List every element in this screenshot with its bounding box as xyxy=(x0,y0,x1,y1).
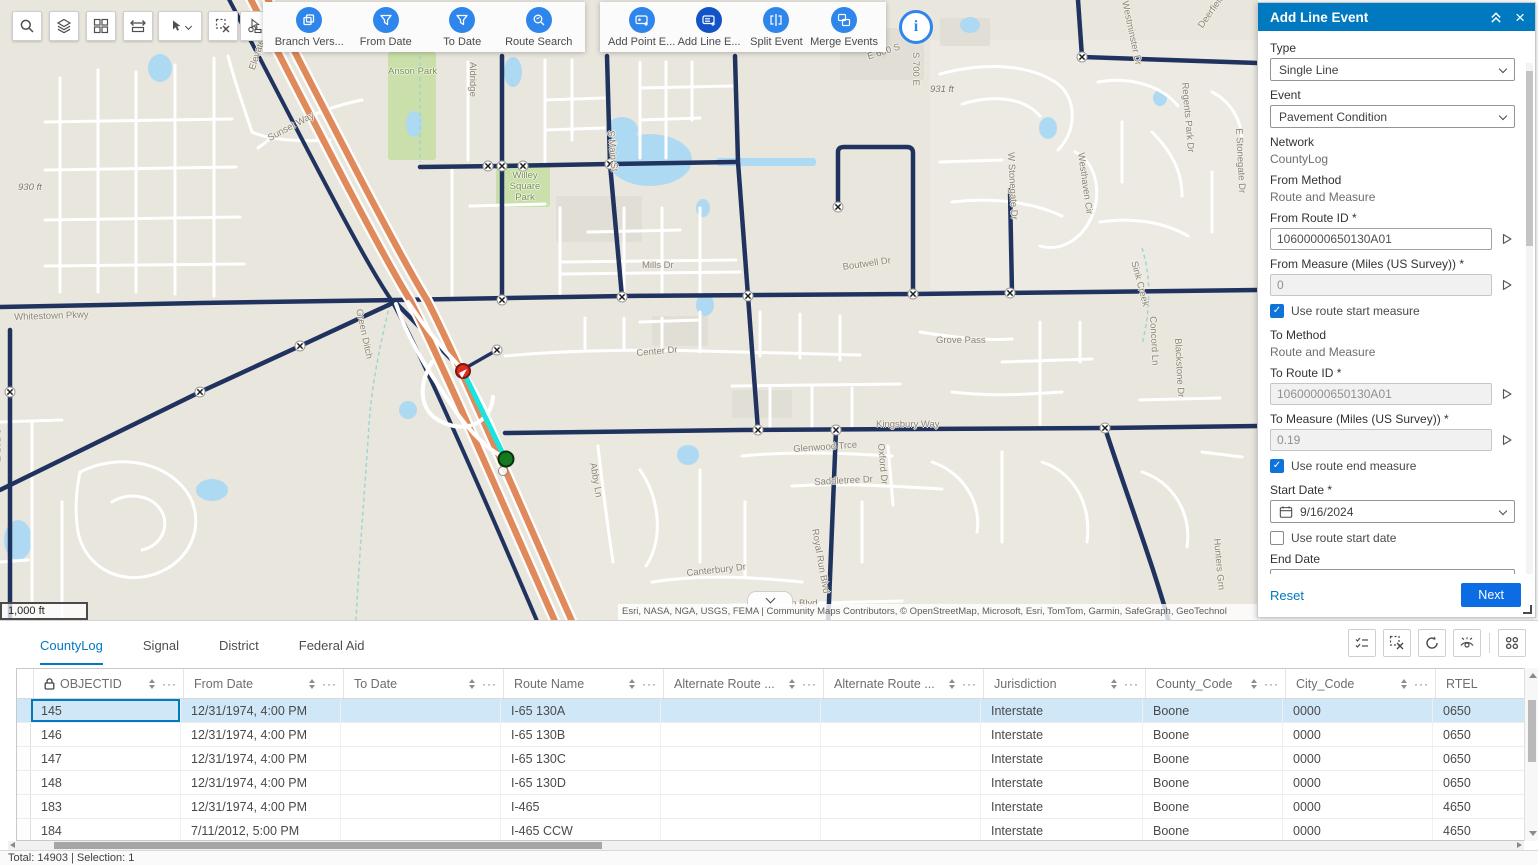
clear-selection-icon xyxy=(1389,635,1405,651)
checkbox-unchecked-icon xyxy=(1270,531,1284,545)
from-measure-input[interactable] xyxy=(1270,274,1492,296)
table-cell[interactable] xyxy=(661,723,821,746)
sort-icon[interactable] xyxy=(143,679,155,689)
merge-events-button[interactable]: Merge Events xyxy=(810,7,878,48)
to-measure-marker[interactable] xyxy=(499,452,514,467)
add-line-event-panel: Add Line Event × Type Single Line Event … xyxy=(1257,2,1536,618)
to-route-id-label: To Route ID * xyxy=(1270,366,1515,380)
from-method-value: Route and Measure xyxy=(1270,190,1515,204)
column-header[interactable]: Route Name··· xyxy=(504,669,664,698)
table-cell[interactable] xyxy=(661,747,821,770)
basemap-grid-icon xyxy=(93,18,109,34)
sort-icon[interactable] xyxy=(943,679,955,689)
next-button[interactable]: Next xyxy=(1461,583,1521,607)
sort-icon[interactable] xyxy=(1245,679,1257,689)
table-cell[interactable]: 0650 xyxy=(1433,771,1524,794)
column-menu-icon[interactable]: ··· xyxy=(322,677,337,691)
branch-versions-icon xyxy=(296,7,322,33)
table-cell[interactable]: 4650 xyxy=(1433,819,1524,841)
panel-resize-handle[interactable] xyxy=(1523,605,1532,614)
table-cell[interactable]: 12/31/1974, 4:00 PM xyxy=(181,747,341,770)
table-row[interactable]: 14812/31/1974, 4:00 PMI-65 130DInterstat… xyxy=(17,771,1524,795)
table-toolbar xyxy=(1348,629,1526,657)
select-tool-button[interactable] xyxy=(158,11,202,41)
split-event-button[interactable]: Split Event xyxy=(743,7,810,48)
table-cell[interactable]: Interstate xyxy=(981,747,1143,770)
end-date-placeholder: MM/DD/YYYY xyxy=(1300,574,1376,575)
table-cell[interactable]: Boone xyxy=(1143,771,1283,794)
tool-label: Split Event xyxy=(750,36,803,48)
chevron-down-icon xyxy=(1499,64,1507,72)
close-icon: × xyxy=(1515,9,1525,26)
info-button[interactable]: i xyxy=(899,10,933,44)
table-cell[interactable]: 147 xyxy=(31,747,181,770)
network-label: Network xyxy=(1270,135,1515,149)
table-cell[interactable]: Interstate xyxy=(981,795,1143,818)
sort-icon[interactable] xyxy=(463,679,475,689)
table-cell[interactable] xyxy=(661,795,821,818)
table-body: 14512/31/1974, 4:00 PMI-65 130AInterstat… xyxy=(17,699,1524,841)
clear-table-selection-button[interactable] xyxy=(1383,629,1411,657)
tool-label: Add Line E... xyxy=(678,36,741,48)
table-cell[interactable]: 148 xyxy=(31,771,181,794)
column-header[interactable]: City_Code··· xyxy=(1286,669,1436,698)
table-row[interactable]: 14512/31/1974, 4:00 PMI-65 130AInterstat… xyxy=(17,699,1524,723)
end-date-input[interactable]: MM/DD/YYYY xyxy=(1270,569,1515,574)
tab-signal[interactable]: Signal xyxy=(143,638,179,665)
table-cell[interactable]: 145 xyxy=(31,699,181,722)
table-cell[interactable] xyxy=(341,795,501,818)
filter-icon xyxy=(373,7,399,33)
add-line-event-icon xyxy=(696,7,722,33)
tab-federal-aid[interactable]: Federal Aid xyxy=(299,638,365,665)
column-label: Alternate Route ... xyxy=(834,677,935,691)
tool-label: Route Search xyxy=(505,36,572,48)
table-cell[interactable]: Interstate xyxy=(981,723,1143,746)
table-cell[interactable] xyxy=(661,771,821,794)
table-cell[interactable]: 12/31/1974, 4:00 PM xyxy=(181,723,341,746)
tab-countylog[interactable]: CountyLog xyxy=(40,638,103,665)
clear-selection-button[interactable] xyxy=(208,11,238,41)
table-cell[interactable]: I-65 130B xyxy=(501,723,661,746)
column-menu-icon[interactable]: ··· xyxy=(1264,677,1279,691)
tool-label: Branch Vers... xyxy=(275,36,344,48)
measure-picker-icon[interactable] xyxy=(1499,432,1515,448)
row-strip xyxy=(17,819,31,841)
table-cell[interactable] xyxy=(341,747,501,770)
table-row[interactable]: 1847/11/2012, 5:00 PMI-465 CCWInterstate… xyxy=(17,819,1524,841)
checkbox-label: Use route start measure xyxy=(1291,304,1420,318)
column-label: OBJECTID xyxy=(60,677,122,691)
split-event-icon xyxy=(763,7,789,33)
field-options-grid-icon xyxy=(1504,635,1520,651)
to-method-value: Route and Measure xyxy=(1270,345,1515,359)
calendar-icon xyxy=(1279,574,1293,575)
route-picker-icon[interactable] xyxy=(1499,231,1515,247)
column-label: Jurisdiction xyxy=(994,677,1057,691)
event-label: Event xyxy=(1270,88,1515,102)
row-strip xyxy=(17,771,31,794)
column-header[interactable]: To Date··· xyxy=(344,669,504,698)
column-label: RTEL xyxy=(1446,677,1478,691)
table-cell[interactable] xyxy=(341,699,501,722)
column-label: Route Name xyxy=(514,677,584,691)
sort-icon[interactable] xyxy=(623,679,635,689)
panel-close-button[interactable]: × xyxy=(1515,9,1525,26)
table-cell[interactable]: 7/11/2012, 5:00 PM xyxy=(181,819,341,841)
table-cell[interactable]: Boone xyxy=(1143,699,1283,722)
to-method-label: To Method xyxy=(1270,328,1515,342)
column-header[interactable]: County_Code··· xyxy=(1146,669,1286,698)
table-cell[interactable]: 12/31/1974, 4:00 PM xyxy=(181,795,341,818)
chevron-down-icon xyxy=(765,594,775,604)
column-label: To Date xyxy=(354,677,397,691)
measure-picker-icon[interactable] xyxy=(1499,277,1515,293)
column-label: County_Code xyxy=(1156,677,1232,691)
attribute-table-section: CountyLog Signal District Federal Aid xyxy=(0,620,1538,865)
end-date-label: End Date xyxy=(1270,552,1515,566)
table-cell[interactable]: Interstate xyxy=(981,771,1143,794)
tool-label: To Date xyxy=(443,36,481,48)
layers-icon xyxy=(56,18,72,34)
use-route-start-date-checkbox[interactable]: Use route start date xyxy=(1270,531,1515,545)
reset-link[interactable]: Reset xyxy=(1270,588,1304,603)
column-menu-icon[interactable]: ··· xyxy=(162,677,177,691)
table-cell[interactable]: 0650 xyxy=(1433,747,1524,770)
add-line-event-button[interactable]: Add Line E... xyxy=(675,7,742,48)
panel-body: Type Single Line Event Pavement Conditio… xyxy=(1258,31,1535,574)
table-cell[interactable] xyxy=(821,747,981,770)
table-cell[interactable]: I-65 130C xyxy=(501,747,661,770)
table-cell[interactable] xyxy=(821,699,981,722)
column-header[interactable]: RTEL xyxy=(1436,669,1524,698)
clear-selection-icon xyxy=(215,18,231,34)
table-cell[interactable]: Boone xyxy=(1143,723,1283,746)
from-measure-label: From Measure (Miles (US Survey)) * xyxy=(1270,257,1515,271)
column-label: Alternate Route ... xyxy=(674,677,775,691)
refresh-icon xyxy=(1424,635,1440,651)
column-label: From Date xyxy=(194,677,253,691)
table-cell[interactable]: 0000 xyxy=(1283,723,1433,746)
table-cell[interactable]: 0650 xyxy=(1433,699,1524,722)
tab-district[interactable]: District xyxy=(219,638,259,665)
chevron-down-icon xyxy=(184,22,191,29)
from-date-filter-button[interactable]: From Date xyxy=(350,7,422,48)
table-cell[interactable] xyxy=(821,819,981,841)
table-tabs-bar: CountyLog Signal District Federal Aid xyxy=(0,621,1538,665)
calendar-icon xyxy=(1279,505,1293,519)
checkbox-label: Use route start date xyxy=(1291,531,1396,545)
sort-icon[interactable] xyxy=(303,679,315,689)
column-menu-icon[interactable]: ··· xyxy=(1414,677,1429,691)
table-cell[interactable]: I-65 130D xyxy=(501,771,661,794)
map-search-button[interactable] xyxy=(12,11,42,41)
event-select[interactable]: Pavement Condition xyxy=(1270,105,1515,128)
table-cell[interactable] xyxy=(341,771,501,794)
column-menu-icon[interactable]: ··· xyxy=(1124,677,1139,691)
checkbox-checked-icon: ✓ xyxy=(1270,304,1284,318)
type-select-value: Single Line xyxy=(1279,63,1338,77)
chevron-down-icon xyxy=(1499,111,1507,119)
table-row[interactable]: 14712/31/1974, 4:00 PMI-65 130CInterstat… xyxy=(17,747,1524,771)
sort-icon[interactable] xyxy=(783,679,795,689)
show-selected-icon xyxy=(1354,635,1370,651)
from-method-label: From Method xyxy=(1270,173,1515,187)
table-cell[interactable] xyxy=(341,723,501,746)
show-selected-records-button[interactable] xyxy=(1348,629,1376,657)
panel-header: Add Line Event × xyxy=(1258,3,1535,31)
table-horizontal-scrollbar[interactable] xyxy=(8,841,1524,850)
from-measure-marker[interactable] xyxy=(456,364,470,378)
column-header[interactable]: Alternate Route ...··· xyxy=(664,669,824,698)
table-cell[interactable] xyxy=(661,819,821,841)
select-cursor-icon xyxy=(170,19,184,33)
table-status-bar: Total: 14903 | Selection: 1 xyxy=(0,850,1538,865)
start-date-value: 9/16/2024 xyxy=(1300,505,1353,519)
search-icon xyxy=(19,18,35,34)
table-cell[interactable]: 0000 xyxy=(1283,795,1433,818)
panel-scrollbar[interactable] xyxy=(1526,63,1533,574)
selection-tools-card: Branch Vers... From Date To Date Route S… xyxy=(263,2,585,52)
column-menu-icon[interactable]: ··· xyxy=(642,677,657,691)
table-cell[interactable]: Boone xyxy=(1143,747,1283,770)
column-menu-icon[interactable]: ··· xyxy=(962,677,977,691)
double-chevron-up-icon xyxy=(1489,10,1503,24)
table-cell[interactable]: 0000 xyxy=(1283,747,1433,770)
table-cell[interactable]: Boone xyxy=(1143,819,1283,841)
table-cell[interactable]: 0000 xyxy=(1283,699,1433,722)
table-cell[interactable]: 0000 xyxy=(1283,819,1433,841)
park-area xyxy=(388,52,436,160)
table-cell[interactable]: 146 xyxy=(31,723,181,746)
sort-icon[interactable] xyxy=(1105,679,1117,689)
table-cell[interactable]: 12/31/1974, 4:00 PM xyxy=(181,771,341,794)
use-route-end-measure-checkbox[interactable]: ✓ Use route end measure xyxy=(1270,459,1515,473)
select-route-icon xyxy=(247,18,263,34)
chevron-down-icon xyxy=(1499,506,1507,514)
sort-icon[interactable] xyxy=(1395,679,1407,689)
table-cell[interactable]: Boone xyxy=(1143,795,1283,818)
add-point-event-button[interactable]: Add Point E... xyxy=(608,7,675,48)
network-value: CountyLog xyxy=(1270,152,1515,166)
row-strip-header xyxy=(17,669,34,698)
from-route-id-label: From Route ID * xyxy=(1270,211,1515,225)
refresh-button[interactable] xyxy=(1418,629,1446,657)
tool-label: From Date xyxy=(360,36,412,48)
table-cell[interactable]: Interstate xyxy=(981,819,1143,841)
add-point-event-icon xyxy=(629,7,655,33)
start-date-input[interactable]: 9/16/2024 xyxy=(1270,500,1515,523)
attribute-table: OBJECTID···From Date···To Date···Route N… xyxy=(16,668,1524,841)
table-vertical-scrollbar[interactable] xyxy=(1524,668,1538,841)
event-editor-app: Anson ParkWilley Square ParkAldridgeS Ma… xyxy=(0,0,1538,865)
branch-versions-button[interactable]: Branch Vers... xyxy=(273,7,345,48)
type-label: Type xyxy=(1270,41,1515,55)
panel-collapse-button[interactable] xyxy=(1489,10,1503,24)
table-cell[interactable] xyxy=(661,699,821,722)
column-menu-icon[interactable]: ··· xyxy=(482,677,497,691)
info-icon: i xyxy=(914,18,918,36)
hide-fields-eye-icon xyxy=(1459,635,1475,651)
table-cell[interactable]: 4650 xyxy=(1433,795,1524,818)
map-view[interactable]: Anson ParkWilley Square ParkAldridgeS Ma… xyxy=(0,0,1258,620)
filter-icon xyxy=(449,7,475,33)
toolbar-divider xyxy=(1489,633,1490,653)
basemap-gallery-button[interactable] xyxy=(86,11,116,41)
panel-footer: Reset Next xyxy=(1258,574,1535,617)
table-cell[interactable]: 0000 xyxy=(1283,771,1433,794)
table-cell[interactable] xyxy=(821,723,981,746)
to-route-id-input[interactable] xyxy=(1270,383,1492,405)
row-strip xyxy=(17,699,31,722)
to-measure-input[interactable] xyxy=(1270,429,1492,451)
start-date-label: Start Date * xyxy=(1270,483,1515,497)
record-count-text: Total: 14903 | Selection: 1 xyxy=(8,852,134,864)
checkbox-checked-icon: ✓ xyxy=(1270,459,1284,473)
route-search-button[interactable]: Route Search xyxy=(503,7,575,48)
column-header[interactable]: Alternate Route ...··· xyxy=(824,669,984,698)
tool-label: Add Point E... xyxy=(608,36,675,48)
type-select[interactable]: Single Line xyxy=(1270,58,1515,81)
column-header[interactable]: OBJECTID··· xyxy=(34,669,184,698)
column-header[interactable]: Jurisdiction··· xyxy=(984,669,1146,698)
checkbox-label: Use route end measure xyxy=(1291,459,1416,473)
column-menu-icon[interactable]: ··· xyxy=(802,677,817,691)
field-options-button[interactable] xyxy=(1498,629,1526,657)
measure-button[interactable] xyxy=(123,11,153,41)
use-route-start-measure-checkbox[interactable]: ✓ Use route start measure xyxy=(1270,304,1515,318)
to-measure-label: To Measure (Miles (US Survey)) * xyxy=(1270,412,1515,426)
event-tools-card: Add Point E... Add Line E... Split Event… xyxy=(600,2,886,52)
table-cell[interactable]: 184 xyxy=(31,819,181,841)
table-cell[interactable]: I-465 CCW xyxy=(501,819,661,841)
row-strip xyxy=(17,795,31,818)
basemap xyxy=(0,0,1258,620)
table-cell[interactable]: I-465 xyxy=(501,795,661,818)
column-header[interactable]: From Date··· xyxy=(184,669,344,698)
table-row[interactable]: 14612/31/1974, 4:00 PMI-65 130BInterstat… xyxy=(17,723,1524,747)
table-header-row: OBJECTID···From Date···To Date···Route N… xyxy=(17,669,1524,699)
lock-icon xyxy=(44,678,55,690)
table-cell[interactable]: 183 xyxy=(31,795,181,818)
column-label: City_Code xyxy=(1296,677,1354,691)
scale-bar: 1,000 ft xyxy=(0,602,88,620)
merge-events-icon xyxy=(831,7,857,33)
route-end-ring xyxy=(499,467,508,476)
table-cell[interactable]: I-65 130A xyxy=(501,699,661,722)
to-date-filter-button[interactable]: To Date xyxy=(426,7,498,48)
hide-fields-button[interactable] xyxy=(1453,629,1481,657)
row-strip xyxy=(17,723,31,746)
table-cell[interactable]: Interstate xyxy=(981,699,1143,722)
layers-button[interactable] xyxy=(49,11,79,41)
row-strip xyxy=(17,747,31,770)
table-cell[interactable]: 12/31/1974, 4:00 PM xyxy=(181,699,341,722)
table-cell[interactable] xyxy=(341,819,501,841)
table-cell[interactable] xyxy=(821,771,981,794)
route-picker-icon[interactable] xyxy=(1499,386,1515,402)
table-row[interactable]: 18312/31/1974, 4:00 PMI-465InterstateBoo… xyxy=(17,795,1524,819)
route-search-icon xyxy=(526,7,552,33)
tool-label: Merge Events xyxy=(810,36,878,48)
measure-icon xyxy=(129,18,147,34)
table-cell[interactable] xyxy=(821,795,981,818)
from-route-id-input[interactable] xyxy=(1270,228,1492,250)
map-attribution: Esri, NASA, NGA, USGS, FEMA | Community … xyxy=(618,604,1258,620)
panel-title: Add Line Event xyxy=(1270,10,1477,25)
table-cell[interactable]: 0650 xyxy=(1433,723,1524,746)
event-select-value: Pavement Condition xyxy=(1279,110,1387,124)
